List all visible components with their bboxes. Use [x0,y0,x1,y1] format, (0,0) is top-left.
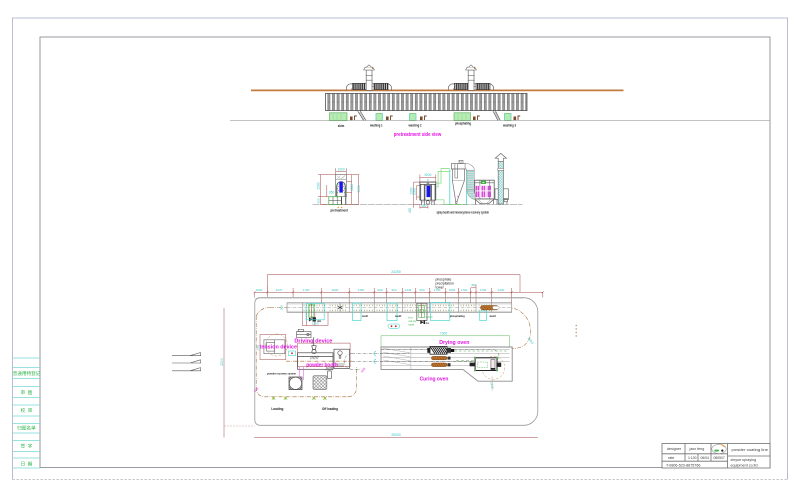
svg-text:Curing oven: Curing oven [420,377,449,383]
svg-text:tower: tower [436,286,445,290]
svg-text:900: 900 [377,288,382,292]
svg-text:450: 450 [471,283,476,287]
svg-text:washing 3: washing 3 [502,124,516,128]
svg-text:pretreatment side view: pretreatment side view [394,132,442,138]
svg-text:skim: skim [317,319,321,323]
svg-text:P: P [427,178,429,182]
svg-text:1700: 1700 [461,288,468,292]
svg-text:校 审: 校 审 [21,407,33,414]
svg-text:1443: 1443 [405,288,412,292]
svg-text:T-0806-523-8875766: T-0806-523-8875766 [666,463,700,467]
svg-text:wash1: wash1 [361,314,368,318]
svg-text:pretreatment: pretreatment [330,209,348,213]
svg-text:Loading: Loading [271,407,283,411]
svg-text:1000: 1000 [338,167,345,171]
svg-text:900: 900 [280,305,284,310]
svg-text:wash2: wash2 [394,314,401,318]
svg-text:850: 850 [329,191,335,195]
svg-text:designer: designer [667,447,682,451]
svg-text:2200: 2200 [220,358,224,366]
svg-text:1500: 1500 [449,288,456,292]
svg-text:jaxx feng: jaxx feng [689,447,705,451]
svg-text:审 图: 审 图 [21,389,33,396]
svg-text:签 字: 签 字 [21,443,33,449]
svg-text:phosphating: phosphating [455,122,471,126]
svg-text:1:100: 1:100 [688,456,697,460]
svg-text:900: 900 [391,288,396,292]
svg-text:skim: skim [338,124,345,128]
svg-text:450: 450 [421,204,427,208]
svg-text:600: 600 [316,198,320,203]
svg-text:2200: 2200 [498,288,505,292]
svg-text:spray booth and monocyclone re: spray booth and monocyclone recovery sys… [436,211,489,215]
svg-text:900: 900 [419,288,424,292]
svg-text:1700: 1700 [480,288,487,292]
svg-text:washing 2: washing 2 [408,124,422,128]
svg-text:3250: 3250 [357,185,361,192]
svg-text:powder booth: powder booth [306,362,338,368]
svg-text:xinyue spraying: xinyue spraying [731,458,757,462]
svg-text:1500: 1500 [413,188,417,195]
svg-text:powder recovery system: powder recovery system [267,372,296,376]
svg-text:equipment co.ltd: equipment co.ltd [731,463,758,467]
svg-text:2a: 2a [426,321,430,325]
svg-text:rate: rate [668,456,674,460]
svg-text:25000: 25000 [391,433,401,437]
svg-text:3000: 3000 [332,288,339,292]
svg-text:phosphating: phosphating [450,314,465,318]
svg-text:powder coating line: powder coating line [732,448,769,452]
svg-text:归图名单: 归图名单 [17,425,36,432]
svg-text:普通用特登记: 普通用特登记 [13,370,41,377]
svg-text:2270: 2270 [276,288,283,292]
svg-text:tension device: tension device [260,344,298,350]
svg-text:2200: 2200 [317,182,321,189]
svg-text:1450: 1450 [358,288,365,292]
svg-text:24250: 24250 [391,270,401,274]
svg-text:3000: 3000 [424,173,431,177]
svg-text:wash3: wash3 [489,314,496,318]
svg-text:washing 1: washing 1 [369,124,382,128]
svg-text:1500: 1500 [256,288,263,292]
svg-text:06/04: 06/04 [701,456,710,460]
svg-text:Drying oven: Drying oven [439,340,470,346]
svg-text:tank: tank [409,323,415,327]
svg-text:1700: 1700 [303,288,310,292]
svg-text:450: 450 [408,208,412,214]
svg-text:Off loading: Off loading [322,407,338,411]
svg-text:080507: 080507 [714,456,725,460]
svg-text:7300: 7300 [440,332,448,336]
svg-text:1500: 1500 [350,184,354,191]
